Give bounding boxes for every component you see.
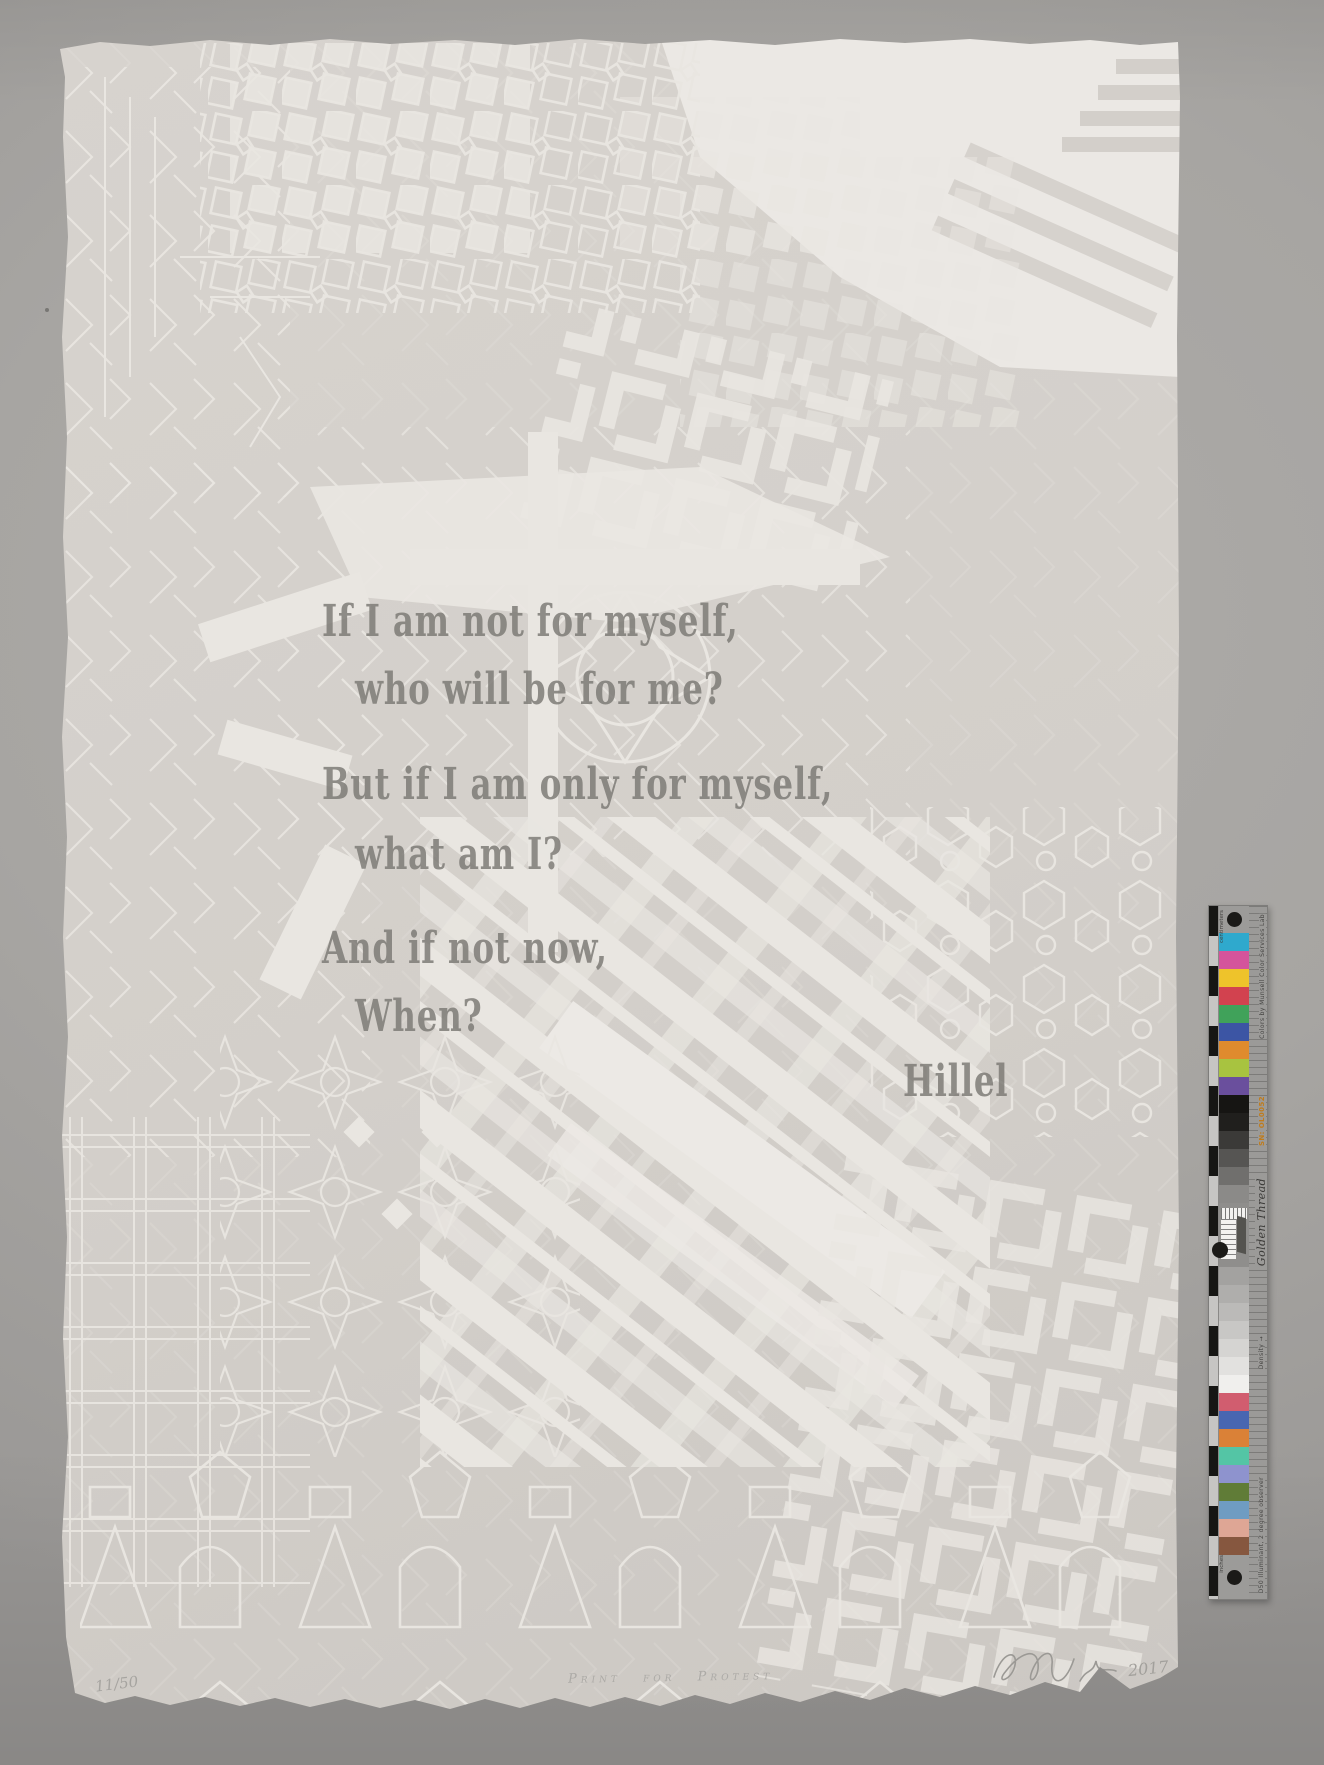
quote-line: who will be for me? [355, 664, 724, 715]
registration-dot-icon [1227, 1570, 1242, 1585]
color-patch [1219, 1005, 1249, 1023]
color-patch [1219, 1149, 1249, 1167]
color-patch [1219, 969, 1249, 987]
color-patch [1219, 1357, 1249, 1375]
color-patch [1219, 1185, 1249, 1203]
density-label: Density → [1258, 1336, 1265, 1369]
color-patch [1219, 1041, 1249, 1059]
registration-dot-icon [1227, 912, 1242, 927]
color-patch [1219, 1339, 1249, 1357]
color-patch [1219, 1537, 1249, 1555]
geometric-pattern-artwork [60, 37, 1180, 1713]
quote-line: But if I am only for myself, [322, 759, 833, 810]
color-patch [1219, 1519, 1249, 1537]
quote-line: And if not now, [322, 923, 608, 974]
color-patch [1219, 1095, 1249, 1113]
color-patch [1219, 1483, 1249, 1501]
resolution-chip [1219, 1203, 1249, 1267]
dust-speck [45, 308, 49, 312]
color-patch [1219, 1131, 1249, 1149]
maker-label: Colors by Munsell Color Services Lab [1259, 914, 1266, 1039]
target-data-column: Colors by Munsell Color Services Lab SN:… [1249, 906, 1267, 1599]
color-patch [1219, 1411, 1249, 1429]
illuminant-label: D50 Illuminant, 2 degree observer [1258, 1477, 1265, 1593]
quote-line: When? [355, 991, 482, 1042]
color-patch [1219, 1447, 1249, 1465]
color-patch [1219, 1393, 1249, 1411]
date-inscription: 2017 [1127, 1657, 1169, 1680]
patch-stack-lights [1219, 1267, 1249, 1393]
print-sheet: If I am not for myself, who will be for … [60, 37, 1180, 1713]
color-patch [1219, 1285, 1249, 1303]
color-patch [1219, 1023, 1249, 1041]
serial-label: SN: OL0052 [1258, 1096, 1266, 1146]
color-patch [1219, 951, 1249, 969]
quote-line: what am I? [355, 829, 563, 880]
centimeters-label: centimeters [1219, 910, 1225, 943]
color-patch [1219, 1429, 1249, 1447]
color-patch [1219, 1059, 1249, 1077]
inches-label: inches [1219, 1555, 1225, 1573]
color-patch [1219, 1321, 1249, 1339]
color-patch [1219, 1303, 1249, 1321]
registration-dot-icon [1212, 1242, 1228, 1258]
color-patch [1219, 1167, 1249, 1185]
color-patch [1219, 1465, 1249, 1483]
quote-attribution: Hillel [903, 1056, 1008, 1107]
color-patch [1219, 1267, 1249, 1285]
gray-wedge [1237, 1216, 1246, 1255]
color-patch [1219, 1077, 1249, 1095]
artist-signature [988, 1641, 1128, 1701]
patch-stack-bottom [1219, 1393, 1249, 1555]
patch-stack-top [1219, 933, 1249, 1095]
color-patch [1219, 1501, 1249, 1519]
museum-photograph: If I am not for myself, who will be for … [0, 0, 1324, 1765]
patch-stack-darks [1219, 1095, 1249, 1203]
color-patch [1219, 987, 1249, 1005]
color-calibration-ruler: Colors by Munsell Color Services Lab SN:… [1208, 905, 1268, 1600]
color-patch [1219, 1113, 1249, 1131]
color-patch [1219, 1375, 1249, 1393]
quote-line: If I am not for myself, [322, 596, 738, 647]
brand-label: Golden Thread [1255, 1178, 1267, 1266]
